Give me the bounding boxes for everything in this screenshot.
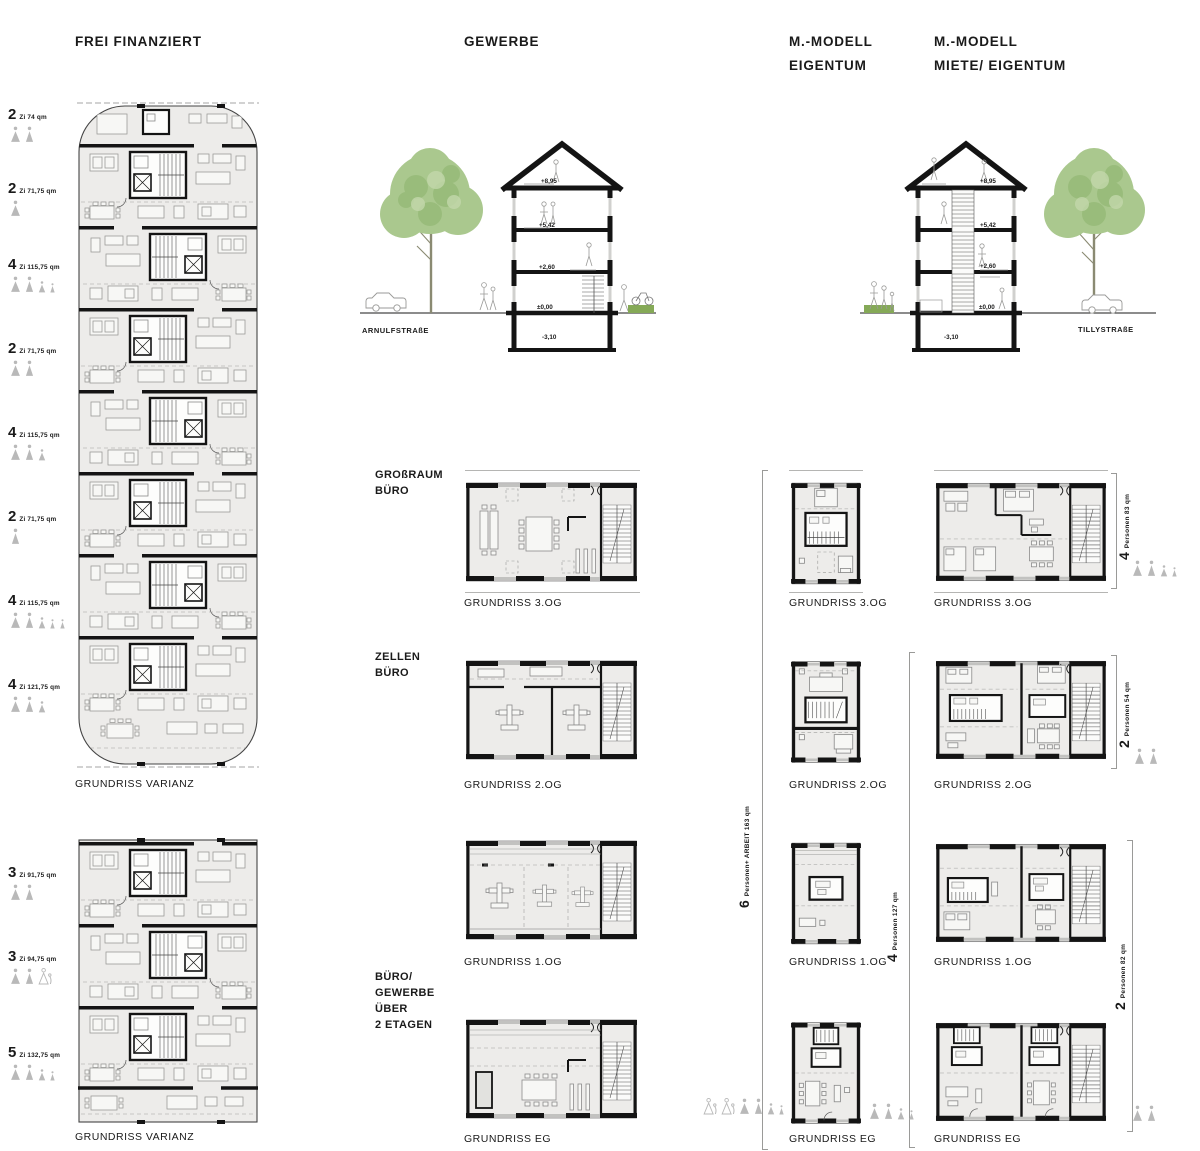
room-count: 2: [8, 106, 16, 123]
rule: [465, 470, 640, 471]
person-count: 2: [1112, 1002, 1128, 1010]
person-woman-icon: [1134, 748, 1145, 765]
person-man-icon: [24, 884, 35, 901]
floorplan-gewerbe-3og: [464, 477, 639, 587]
person-man-icon: [24, 1064, 35, 1081]
column-title-miete-eigentum: M.-MODELL MIETE/ EIGENTUM: [934, 30, 1066, 78]
occupant-icons: [10, 968, 74, 985]
building-section-tillystrasse: +8,95 +5,42 +2,60 ±0,00 -3,10 TILLY: [856, 132, 1160, 356]
person-adult-baby-outline-icon: [721, 1098, 736, 1115]
person-woman-icon: [10, 612, 21, 629]
section-building: +8,95 +5,42 +2,60 ±0,00 -3,10: [906, 144, 1026, 350]
plan-caption-variance-2: GRUNDRISS VARIANZ: [75, 1131, 194, 1143]
plan-caption-gewerbe-3og: GRUNDRISS 3.OG: [464, 597, 562, 609]
occupant-icons-83qm: [1132, 560, 1178, 577]
person-woman-icon: [10, 126, 21, 143]
floorplan-eigentum-2og: [789, 655, 863, 769]
level-label: ±0,00: [537, 304, 553, 311]
apartment-size: Zi 115,75 qm: [19, 264, 59, 271]
person-woman-icon: [869, 1103, 880, 1120]
level-label: +2,60: [539, 264, 555, 271]
occupant-icons: [10, 444, 74, 461]
floorplan-gewerbe-2og: [464, 655, 639, 765]
section-building: +8,95 +5,42 +2,60 ±0,00 -3,10: [502, 144, 622, 350]
car-icon: [366, 293, 406, 311]
apartment-row: 4Zi 115,75 qm: [8, 424, 74, 461]
level-label: +8,95: [980, 178, 996, 185]
person-child-sm-icon: [908, 1110, 915, 1120]
annotation-text: Personen 82 qm: [1120, 944, 1127, 998]
occupant-icons: [10, 612, 74, 629]
person-child-sm-icon: [49, 1071, 56, 1081]
floorplan-gewerbe-1og: [464, 835, 639, 947]
plan-caption-miete-1og: GRUNDRISS 1.OG: [934, 956, 1032, 968]
apartment-size: Zi 121,75 qm: [19, 684, 60, 691]
use-label-buero-gewerbe: BÜRO/ GEWERBE ÜBER 2 ETAGEN: [375, 970, 435, 1034]
stair-hatch: [582, 276, 604, 313]
person-man-icon: [10, 528, 21, 545]
person-child-icon: [38, 1069, 46, 1081]
person-child-sm-icon: [49, 283, 56, 293]
plan-caption-eigentum-eg: GRUNDRISS EG: [789, 1133, 876, 1145]
room-count: 4: [8, 256, 16, 273]
plan-caption-miete-eg: GRUNDRISS EG: [934, 1133, 1021, 1145]
apartment-size: Zi 132,75 qm: [19, 1052, 60, 1059]
apartment-size: Zi 115,75 qm: [19, 432, 59, 439]
rule: [934, 592, 1108, 593]
annotation-text: Personen 54 qm: [1124, 682, 1131, 736]
floorplan-miete-3og: [934, 477, 1108, 587]
occupant-icons: [10, 884, 74, 901]
pedestrian-icon: [620, 285, 628, 311]
pedestrian-icons: [480, 283, 496, 310]
occupant-icons-54qm: [1134, 748, 1159, 765]
person-child-icon: [38, 281, 46, 293]
level-label: -3,10: [542, 334, 557, 341]
plan-caption-eigentum-3og: GRUNDRISS 3.OG: [789, 597, 887, 609]
floorplan-miete-eg: [934, 1015, 1108, 1129]
annotation-text: Personen 83 qm: [1124, 494, 1131, 548]
hedge: [864, 305, 894, 313]
apartment-row: 3Zi 94,75 qm: [8, 948, 74, 985]
person-man-icon: [1146, 560, 1157, 577]
floorplan-eigentum-1og: [789, 838, 863, 949]
apartment-row: 2Zi 74 qm: [8, 106, 74, 143]
person-adult-baby-outline-icon: [703, 1098, 718, 1115]
level-label: -3,10: [944, 334, 959, 341]
rule: [465, 592, 640, 593]
apartment-size: Zi 71,75 qm: [19, 348, 56, 355]
annotation-text: Personen+ ARBEIT 163 qm: [744, 806, 751, 896]
occupant-icons: [10, 276, 74, 293]
person-woman-icon: [10, 968, 21, 985]
person-man-icon: [24, 126, 35, 143]
figure-icons: [540, 160, 592, 266]
floorplan-variance-short: [77, 834, 259, 1128]
room-count: 2: [8, 508, 16, 525]
floorplan-gewerbe-eg: [464, 1014, 639, 1126]
person-count: 4: [884, 954, 900, 962]
person-man-icon: [753, 1098, 764, 1115]
person-woman-icon: [1132, 560, 1143, 577]
room-count: 4: [8, 676, 16, 693]
plan-caption-variance-1: GRUNDRISS VARIANZ: [75, 778, 194, 790]
person-woman-icon: [739, 1098, 750, 1115]
person-man-icon: [24, 360, 35, 377]
person-adult-baby-outline-icon: [38, 968, 53, 985]
annotation-2-personen-82: 2 Personen 82 qm: [1112, 944, 1128, 1010]
dimension-bracket-eigentum: [762, 470, 768, 1150]
plan-caption-miete-2og: GRUNDRISS 2.OG: [934, 779, 1032, 791]
room-count: 5: [8, 1044, 16, 1061]
floorplan-eigentum-3og: [789, 478, 863, 589]
level-label: +2,60: [980, 263, 996, 270]
person-man-icon: [24, 696, 35, 713]
annotation-text: Personen 127 qm: [892, 892, 899, 950]
room-count: 3: [8, 948, 16, 965]
person-child-sm-icon: [778, 1105, 785, 1115]
room-count: 2: [8, 340, 16, 357]
person-man-icon: [1148, 748, 1159, 765]
apartment-size: Zi 91,75 qm: [19, 872, 56, 879]
apartment-size: Zi 71,75 qm: [19, 188, 56, 195]
person-count: 6: [736, 900, 752, 908]
use-label-grossraum-buero: GROßRAUM BÜRO: [375, 468, 443, 500]
person-woman-icon: [10, 276, 21, 293]
use-label-zellen-buero: ZELLEN BÜRO: [375, 650, 420, 682]
person-child-icon: [767, 1103, 775, 1115]
person-child-icon: [38, 449, 46, 461]
person-child-icon: [897, 1108, 905, 1120]
apartment-size: Zi 94,75 qm: [19, 956, 56, 963]
person-woman-icon: [10, 444, 21, 461]
floorplan-variance-long: [77, 100, 259, 770]
person-woman-icon: [10, 200, 21, 217]
person-man-icon: [883, 1103, 894, 1120]
level-label: +5,42: [980, 222, 996, 229]
apartment-row: 5Zi 132,75 qm: [8, 1044, 74, 1081]
person-woman-icon: [10, 1064, 21, 1081]
person-child-icon: [38, 701, 46, 713]
annotation-4-personen-127: 4 Personen 127 qm: [884, 892, 900, 962]
plan-caption-gewerbe-eg: GRUNDRISS EG: [464, 1133, 551, 1145]
person-woman-icon: [10, 696, 21, 713]
room-count: 3: [8, 864, 16, 881]
plan-caption-eigentum-1og: GRUNDRISS 1.OG: [789, 956, 887, 968]
person-man-icon: [24, 612, 35, 629]
apartment-row: 4Zi 121,75 qm: [8, 676, 74, 713]
apartment-size: Zi 115,75 qm: [19, 600, 59, 607]
occupant-icons: [10, 528, 74, 545]
person-child-sm-icon: [59, 619, 66, 629]
floorplan-miete-2og: [934, 653, 1108, 767]
column-title-frei-finanziert: FREI FINANZIERT: [75, 30, 202, 54]
apartment-row: 2Zi 71,75 qm: [8, 180, 74, 217]
apartment-row: 2Zi 71,75 qm: [8, 508, 74, 545]
person-man-icon: [24, 968, 35, 985]
annotation-2-personen-54: 2 Personen 54 qm: [1116, 682, 1132, 748]
bicycle-icon: [632, 293, 653, 305]
floorplan-eigentum-eg: [789, 1016, 863, 1130]
occupant-icons: [10, 360, 74, 377]
apartment-row: 4Zi 115,75 qm: [8, 256, 74, 293]
presentation-sheet: FREI FINANZIERT 2Zi 74 qm 2Zi 71,75 qm 4…: [0, 0, 1200, 1151]
person-woman-icon: [1132, 1105, 1143, 1122]
plan-caption-miete-3og: GRUNDRISS 3.OG: [934, 597, 1032, 609]
plan-caption-gewerbe-1og: GRUNDRISS 1.OG: [464, 956, 562, 968]
column-title-eigentum: M.-MODELL EIGENTUM: [789, 30, 873, 78]
level-label: ±0,00: [979, 304, 995, 311]
apartment-size: Zi 71,75 qm: [19, 516, 56, 523]
level-label: +8,95: [541, 178, 557, 185]
person-child-sm-icon: [49, 619, 56, 629]
floorplan-miete-1og: [934, 836, 1108, 950]
person-count: 2: [1116, 740, 1132, 748]
occupant-icons: [10, 200, 74, 217]
room-count: 4: [8, 424, 16, 441]
apartment-row: 4Zi 115,75 qm: [8, 592, 74, 629]
column-title-gewerbe: GEWERBE: [464, 30, 539, 54]
occupant-icons: [10, 696, 74, 713]
dimension-bracket-127qm: [909, 652, 915, 1148]
plan-caption-gewerbe-2og: GRUNDRISS 2.OG: [464, 779, 562, 791]
tree-icon: [1044, 148, 1145, 313]
person-woman-icon: [10, 884, 21, 901]
occupant-icons-82qm: [1132, 1105, 1157, 1122]
person-man-icon: [24, 444, 35, 461]
level-label: +5,42: [539, 222, 555, 229]
car-icon: [1082, 295, 1122, 313]
annotation-6-personen-arbeit: 6 Personen+ ARBEIT 163 qm: [736, 806, 752, 908]
stair-tower-hatch: [952, 190, 974, 313]
room-count: 2: [8, 180, 16, 197]
rule: [789, 592, 863, 593]
occupant-icons-eigentum-eg: [703, 1098, 785, 1115]
annotation-4-personen-83: 4 Personen 83 qm: [1116, 494, 1132, 560]
occupant-icons: [10, 1064, 74, 1081]
person-child-icon: [1160, 565, 1168, 577]
person-child-sm-icon: [1171, 567, 1178, 577]
apartment-row: 3Zi 91,75 qm: [8, 864, 74, 901]
room-count: 4: [8, 592, 16, 609]
plan-caption-eigentum-2og: GRUNDRISS 2.OG: [789, 779, 887, 791]
rule: [934, 470, 1108, 471]
street-label-arnulfstrasse: ARNULFSTRAßE: [362, 326, 429, 335]
occupant-icons-miete-eg: [869, 1103, 915, 1120]
person-count: 4: [1116, 552, 1132, 560]
apartment-size: Zi 74 qm: [19, 114, 47, 121]
person-man-icon: [24, 276, 35, 293]
occupant-icons: [10, 126, 74, 143]
street-label-tillystrasse: TILLYSTRAßE: [1078, 325, 1134, 334]
person-man-icon: [1146, 1105, 1157, 1122]
person-woman-icon: [10, 360, 21, 377]
rule: [789, 470, 863, 471]
tree-icon: [380, 148, 483, 313]
hedge: [628, 305, 654, 313]
building-section-arnulfstrasse: +8,95 +5,42 +2,60 ±0,00 -3,10 ARNULFSTRA…: [356, 132, 660, 356]
apartment-row: 2Zi 71,75 qm: [8, 340, 74, 377]
person-child-icon: [38, 617, 46, 629]
